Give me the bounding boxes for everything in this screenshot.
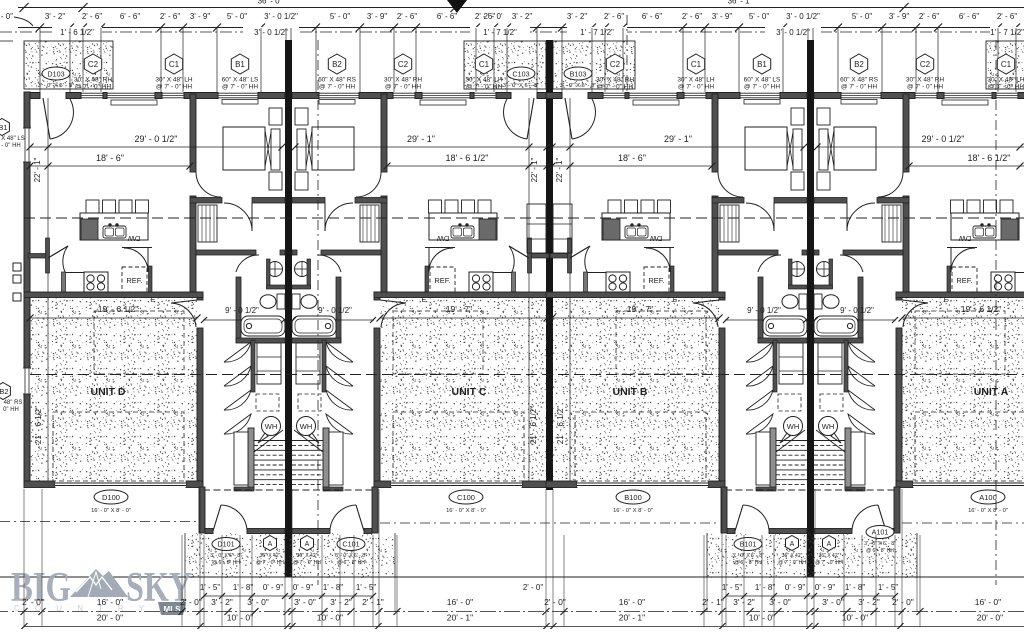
svg-text:@ 7' - 0" HH: @ 7' - 0" HH (907, 84, 943, 91)
svg-text:@ 7' - 0" HH: @ 7' - 0" HH (293, 560, 321, 566)
svg-text:9' - 0 1/2": 9' - 0 1/2" (840, 306, 874, 315)
svg-text:60" X 48" LS: 60" X 48" LS (744, 77, 781, 84)
svg-text:A: A (790, 541, 795, 548)
svg-text:@ 7' - 0" HH: @ 7' - 0" HH (988, 84, 1024, 91)
svg-text:2' - 0": 2' - 0" (892, 597, 914, 607)
svg-text:29' - 1": 29' - 1" (407, 134, 435, 144)
svg-text:B2: B2 (0, 387, 9, 396)
svg-text:C1: C1 (169, 60, 180, 69)
svg-text:21' - 6 1/2": 21' - 6 1/2" (34, 406, 43, 444)
svg-text:16' - 0" X 8' - 0": 16' - 0" X 8' - 0" (613, 508, 653, 514)
svg-text:2' - 0": 2' - 0" (523, 583, 544, 592)
svg-text:@ 7' - 0" HH: @ 7' - 0" HH (256, 560, 284, 566)
svg-text:- 0" HH: - 0" HH (1, 143, 20, 149)
svg-text:10' - 0": 10' - 0" (842, 613, 868, 623)
svg-text:WH: WH (787, 422, 800, 431)
svg-text:- 0": - 0" (1, 12, 13, 21)
svg-text:2' - 0": 2' - 0" (180, 597, 202, 607)
svg-text:2' - 6": 2' - 6" (160, 12, 181, 21)
svg-text:3' - 0": 3' - 0" (822, 597, 844, 607)
svg-text:E: E (673, 297, 678, 304)
svg-text:3' - 0 1/2": 3' - 0 1/2" (264, 12, 298, 21)
svg-text:MLS: MLS (164, 605, 182, 614)
svg-text:@ 6' - 8" HH: @ 6' - 8" HH (734, 560, 762, 566)
svg-text:0' - 9": 0' - 9" (263, 583, 284, 592)
svg-text:UNIT B: UNIT B (613, 386, 648, 398)
svg-text:E: E (944, 297, 949, 304)
svg-text:2' - 6": 2' - 6" (997, 12, 1018, 21)
svg-text:@ 6' - 8" HH: @ 6' - 8" HH (337, 560, 365, 566)
svg-text:36" X 42": 36" X 42" (819, 553, 840, 559)
svg-text:3' - 0" X 6' - 8": 3' - 0" X 6' - 8" (503, 83, 540, 89)
svg-text:1' - 7 1/2": 1' - 7 1/2" (580, 28, 614, 37)
svg-text:16' - 0": 16' - 0" (975, 597, 1001, 607)
svg-text:1' - 5": 1' - 5" (200, 583, 221, 592)
svg-text:@ 7' - 0" HH: @ 7' - 0" HH (597, 84, 633, 91)
svg-text:3' - 2": 3' - 2" (45, 12, 66, 21)
svg-text:3' - 0" X 6' - 8": 3' - 0" X 6' - 8" (864, 541, 896, 547)
svg-text:B2: B2 (854, 60, 864, 69)
svg-text:@ 7' - 0" HH: @ 7' - 0" HH (385, 84, 421, 91)
svg-text:C1: C1 (1001, 60, 1012, 69)
svg-text:WH: WH (265, 422, 278, 431)
svg-text:29' - 0 1/2": 29' - 0 1/2" (922, 134, 965, 144)
svg-text:C100: C100 (457, 493, 475, 502)
svg-text:19' - 7": 19' - 7" (446, 304, 472, 314)
svg-text:3' - 0 1/2": 3' - 0 1/2" (786, 12, 820, 21)
svg-text:22' - 1": 22' - 1" (530, 157, 539, 182)
svg-text:30" X 48" RH: 30" X 48" RH (384, 77, 423, 84)
svg-text:9' - 0 1/2": 9' - 0 1/2" (318, 306, 352, 315)
svg-text:@ 7' - 0" HH: @ 7' - 0" HH (815, 560, 843, 566)
svg-text:36' - 1": 36' - 1" (728, 0, 753, 6)
svg-text:20' - 0": 20' - 0" (97, 613, 123, 623)
svg-text:@ 6' - 8" HH: @ 6' - 8" HH (866, 548, 894, 554)
svg-text:20' - 0": 20' - 0" (977, 613, 1003, 623)
svg-text:18' - 6": 18' - 6" (96, 153, 124, 163)
svg-text:3' - 0": 3' - 0" (294, 597, 316, 607)
svg-text:3' - 0" X 6' - 8": 3' - 0" X 6' - 8" (732, 553, 764, 559)
svg-text:3' - 0": 3' - 0" (769, 597, 791, 607)
svg-text:21' - 6 1/2": 21' - 6 1/2" (556, 406, 565, 444)
svg-text:3' - 0 1/2": 3' - 0 1/2" (254, 28, 288, 37)
svg-text:@ 7' - 0" HH: @ 7' - 0" HH (466, 84, 502, 91)
svg-text:REF.: REF. (648, 276, 664, 285)
svg-text:WH: WH (300, 422, 313, 431)
svg-text:UNIT C: UNIT C (452, 386, 487, 398)
svg-text:6' - 6": 6' - 6" (437, 12, 458, 21)
svg-text:@ 7' - 0" HH: @ 7' - 0" HH (678, 84, 714, 91)
svg-text:16' - 0": 16' - 0" (619, 597, 645, 607)
svg-text:30" X 48" LH: 30" X 48" LH (155, 77, 192, 84)
svg-text:2' - 6": 2' - 6" (397, 12, 418, 21)
svg-text:A: A (268, 541, 273, 548)
svg-text:D100: D100 (102, 493, 120, 502)
svg-text:B1: B1 (0, 123, 8, 132)
svg-text:16' - 0": 16' - 0" (97, 597, 123, 607)
svg-text:16' - 0" X 8' - 0": 16' - 0" X 8' - 0" (91, 508, 131, 514)
svg-text:30" X 48" RH: 30" X 48" RH (906, 77, 945, 84)
svg-text:0" HH: 0" HH (3, 407, 19, 413)
svg-text:19' - 7": 19' - 7" (627, 304, 653, 314)
svg-text:2' - 6": 2' - 6" (682, 12, 703, 21)
svg-text:19' - 6 1/2": 19' - 6 1/2" (98, 304, 139, 314)
svg-text:X 48" LS: X 48" LS (1, 136, 24, 142)
svg-text:C103: C103 (512, 70, 529, 79)
svg-text:3' - 2": 3' - 2" (858, 597, 880, 607)
svg-text:3' - 0 1/2": 3' - 0 1/2" (776, 28, 810, 37)
svg-text:16' - 0": 16' - 0" (447, 597, 473, 607)
svg-text:18' - 6": 18' - 6" (618, 153, 646, 163)
svg-text:REF.: REF. (956, 276, 972, 285)
svg-text:60" X 48" RS: 60" X 48" RS (840, 77, 879, 84)
svg-text:1' - 5": 1' - 5" (722, 583, 743, 592)
svg-text:29' - 0 1/2": 29' - 0 1/2" (135, 134, 178, 144)
svg-text:@ 7' - 0" HH: @ 7' - 0" HH (156, 84, 192, 91)
svg-text:9' - 0 1/2": 9' - 0 1/2" (225, 306, 259, 315)
svg-text:A: A (305, 541, 310, 548)
svg-text:3' - 9": 3' - 9" (712, 12, 733, 21)
svg-text:6' - 6": 6' - 6" (642, 12, 663, 21)
svg-text:UNIT D: UNIT D (91, 386, 126, 398)
svg-text:WH: WH (822, 422, 835, 431)
svg-text:@ 7' - 0" HH: @ 7' - 0" HH (744, 84, 780, 91)
svg-text:20' - 1": 20' - 1" (619, 613, 645, 623)
svg-text:@ 7' - 0" HH: @ 7' - 0" HH (319, 84, 355, 91)
svg-text:3' - 0" X 6' - 8": 3' - 0" X 6' - 8" (210, 553, 242, 559)
svg-text:A101: A101 (872, 528, 889, 537)
svg-text:2' - 0': 2' - 0' (483, 12, 503, 21)
svg-text:@ 6' - 8" HH: @ 6' - 8" HH (212, 560, 240, 566)
svg-text:C2: C2 (88, 60, 99, 69)
svg-text:9' - 0 1/2": 9' - 0 1/2" (747, 306, 781, 315)
svg-text:DW: DW (958, 234, 971, 243)
svg-text:3' - 9": 3' - 9" (367, 12, 388, 21)
svg-text:C1: C1 (479, 60, 490, 69)
svg-text:@ 7' - 0" HH: @ 7' - 0" HH (778, 560, 806, 566)
svg-text:0' - 9": 0' - 9" (293, 583, 314, 592)
svg-text:E: E (422, 297, 427, 304)
svg-text:B103: B103 (570, 70, 587, 79)
svg-text:18' - 6 1/2": 18' - 6 1/2" (446, 153, 489, 163)
svg-text:B2: B2 (332, 60, 342, 69)
svg-text:B101: B101 (740, 540, 757, 549)
svg-text:30" X 48" RH: 30" X 48" RH (596, 77, 635, 84)
svg-text:36" X 42": 36" X 42" (297, 553, 318, 559)
svg-text:D103: D103 (47, 70, 64, 79)
svg-text:16' - 0" X 8' - 0": 16' - 0" X 8' - 0" (968, 508, 1008, 514)
svg-text:22' - 1": 22' - 1" (33, 157, 42, 182)
svg-text:C2: C2 (610, 60, 621, 69)
svg-text:2' - 1": 2' - 1" (702, 597, 724, 607)
svg-text:REF.: REF. (434, 276, 450, 285)
svg-text:19' - 6 1/2": 19' - 6 1/2" (961, 304, 1002, 314)
svg-text:36" X 42": 36" X 42" (260, 553, 281, 559)
svg-text:3' - 9": 3' - 9" (190, 12, 211, 21)
svg-text:1' - 6 1/2": 1' - 6 1/2" (60, 28, 94, 37)
svg-text:1' - 7 1/2": 1' - 7 1/2" (990, 28, 1024, 37)
svg-text:DW: DW (127, 234, 140, 243)
svg-text:60" X 48" LS: 60" X 48" LS (222, 77, 259, 84)
svg-text:2' - 0": 2' - 0" (22, 597, 44, 607)
svg-text:36" X 42": 36" X 42" (782, 553, 803, 559)
svg-text:3' - 0" X 6' - 8": 3' - 0" X 6' - 8" (38, 83, 75, 89)
svg-text:6' - 6": 6' - 6" (959, 12, 980, 21)
svg-text:3' - 2": 3' - 2" (330, 597, 352, 607)
svg-text:16' - 0" X 8' - 0": 16' - 0" X 8' - 0" (446, 508, 486, 514)
svg-text:30" X 48" LH: 30" X 48" LH (987, 77, 1024, 84)
svg-text:C1: C1 (691, 60, 702, 69)
svg-text:1' - 8": 1' - 8" (755, 583, 776, 592)
svg-text:29' - 1": 29' - 1" (664, 134, 692, 144)
svg-text:5' - 0": 5' - 0" (330, 12, 351, 21)
svg-text:0' - 9": 0' - 9" (815, 583, 836, 592)
svg-text:3' - 2": 3' - 2" (567, 12, 588, 21)
svg-text:DW: DW (436, 234, 449, 243)
svg-text:B1: B1 (235, 60, 245, 69)
svg-text:3' - 0" X 6' - 8": 3' - 0" X 6' - 8" (560, 83, 597, 89)
svg-text:3' - 2": 3' - 2" (512, 12, 533, 21)
svg-text:30" X 48" LH: 30" X 48" LH (677, 77, 714, 84)
svg-text:36' - 0": 36' - 0" (258, 0, 283, 6)
svg-text:C101: C101 (342, 540, 359, 549)
svg-text:2' - 6": 2' - 6" (604, 12, 625, 21)
svg-text:6' - 6": 6' - 6" (120, 12, 141, 21)
svg-text:@ 7' - 0" HH: @ 7' - 0" HH (222, 84, 258, 91)
svg-text:C2: C2 (920, 60, 931, 69)
svg-text:E: E (151, 297, 156, 304)
svg-text:A100: A100 (979, 493, 997, 502)
svg-text:18' - 6 1/2": 18' - 6 1/2" (968, 153, 1011, 163)
svg-text:2' - 6": 2' - 6" (82, 12, 103, 21)
svg-text:5' - 0": 5' - 0" (852, 12, 873, 21)
svg-text:1' - 7 1/2": 1' - 7 1/2" (483, 28, 517, 37)
svg-text:UNIT A: UNIT A (974, 386, 1009, 398)
svg-text:30" X 48" RH: 30" X 48" RH (74, 77, 113, 84)
svg-text:C2: C2 (398, 60, 409, 69)
svg-text:30" X 48" LH: 30" X 48" LH (465, 77, 502, 84)
svg-text:@ 7' - 0" HH: @ 7' - 0" HH (841, 84, 877, 91)
svg-text:REF.: REF. (126, 276, 142, 285)
svg-text:D101: D101 (217, 540, 234, 549)
svg-text:B100: B100 (624, 493, 642, 502)
svg-text:A: A (827, 541, 832, 548)
svg-text:5' - 0": 5' - 0" (749, 12, 770, 21)
svg-text:3' - 0": 3' - 0" (247, 597, 269, 607)
svg-text:1' - 8": 1' - 8" (233, 583, 254, 592)
svg-text:5' - 0": 5' - 0" (227, 12, 248, 21)
svg-text:20' - 1": 20' - 1" (447, 613, 473, 623)
svg-text:2' - 6": 2' - 6" (919, 12, 940, 21)
svg-text:2' - 0": 2' - 0" (544, 597, 566, 607)
svg-text:@ 7' - 0" HH: @ 7' - 0" HH (75, 84, 111, 91)
svg-text:60" X 48" RS: 60" X 48" RS (318, 77, 357, 84)
svg-text:B1: B1 (757, 60, 767, 69)
svg-text:DW: DW (649, 234, 662, 243)
svg-text:10' - 0": 10' - 0" (317, 613, 343, 623)
svg-text:3' - 9": 3' - 9" (889, 12, 910, 21)
svg-text:22' - 1": 22' - 1" (555, 157, 564, 182)
svg-text:0' - 9": 0' - 9" (785, 583, 806, 592)
svg-text:21' - 6 1/2": 21' - 6 1/2" (529, 406, 538, 444)
svg-text:48" RS: 48" RS (4, 400, 23, 406)
